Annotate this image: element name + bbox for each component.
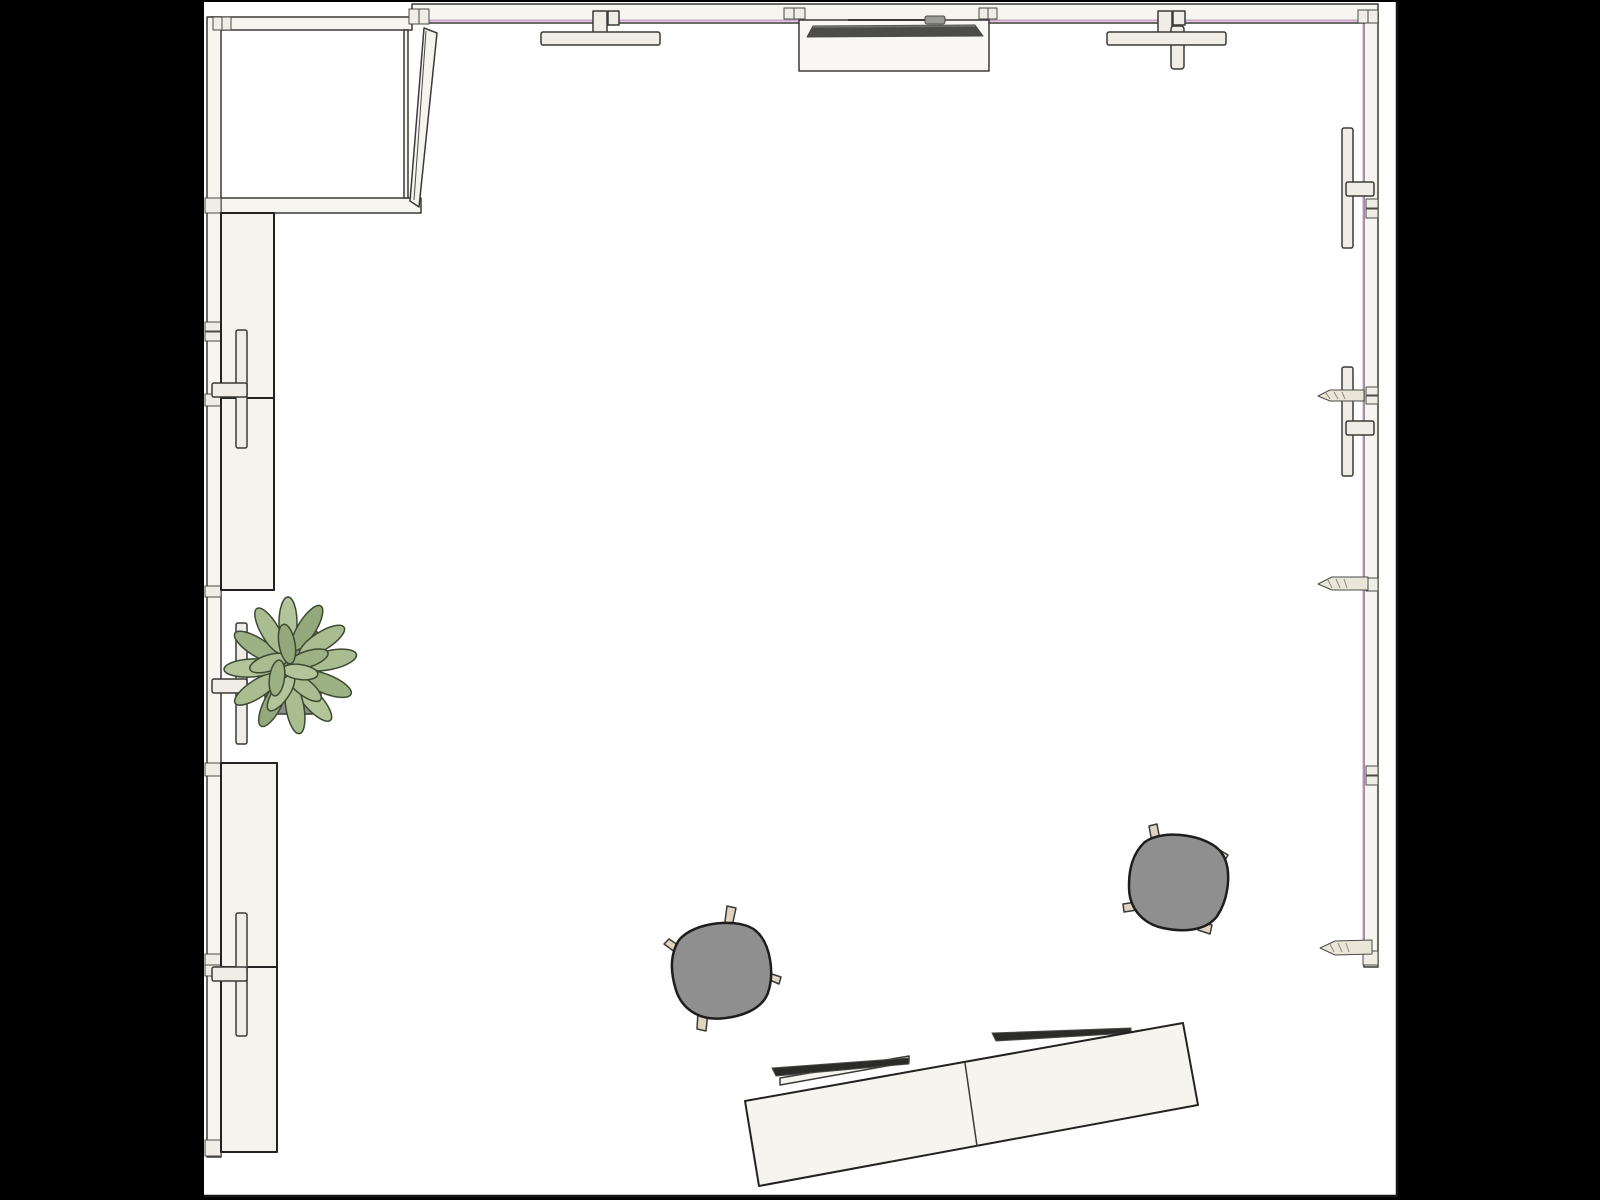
closet-top-wall: [211, 17, 412, 30]
right-wall: [1364, 12, 1378, 967]
cabinet[interactable]: [221, 763, 277, 967]
cabinet[interactable]: [221, 967, 277, 1152]
tv-screen-top-edge: [813, 26, 975, 27]
tv-accessory[interactable]: [925, 16, 945, 24]
closet-right-jamb: [404, 30, 408, 198]
closet-bottom-wall: [211, 198, 421, 213]
floor-plan-svg: [0, 0, 1600, 1200]
drawing-canvas[interactable]: [204, 2, 1398, 1197]
app-viewport: [0, 0, 1600, 1200]
wall-tv-unit[interactable]: [799, 16, 989, 71]
